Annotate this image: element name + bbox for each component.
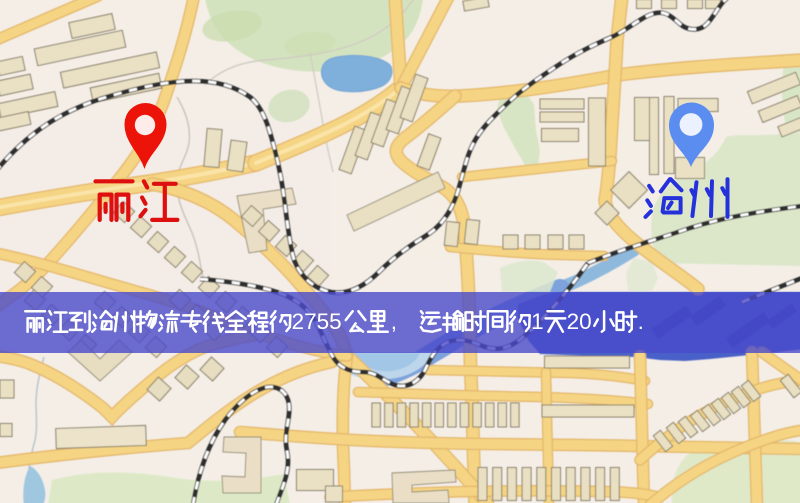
svg-text:,: , [391,309,397,334]
svg-text:.: . [638,309,644,334]
svg-text:2755: 2755 [292,309,342,334]
svg-text:20: 20 [567,309,592,334]
svg-text:1: 1 [531,309,544,334]
